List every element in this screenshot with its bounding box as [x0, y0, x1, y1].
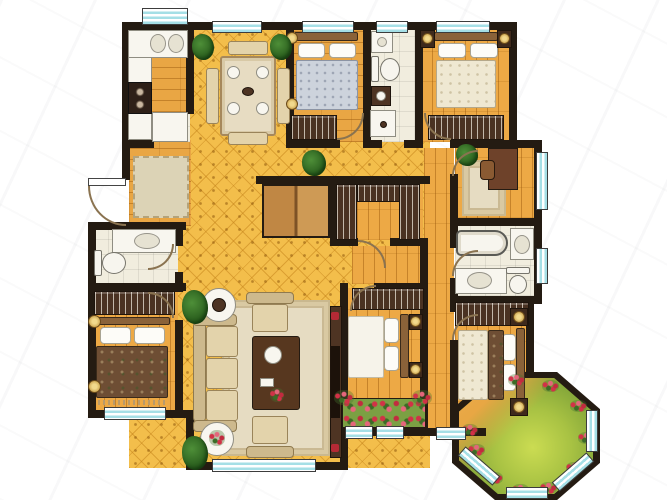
tv-screen [331, 346, 340, 418]
tv-candle-1 [331, 312, 339, 320]
sofa-cushion-2 [206, 358, 238, 389]
b2-headboard [294, 32, 358, 41]
b2-pillow-2 [329, 43, 356, 58]
ms-lamp-2 [513, 401, 525, 413]
entry-door-arc [88, 186, 126, 226]
br-bathtub [456, 230, 508, 256]
kitchen-sink-left [150, 34, 166, 53]
wall-bt-bottom-a [369, 140, 382, 148]
dining-plate-4 [256, 102, 269, 115]
bt-drain-dot [380, 121, 387, 128]
coffee-flowers [270, 388, 284, 402]
side-table-north-vase [212, 298, 226, 312]
b3-headboard [434, 32, 498, 41]
entry-mat [133, 156, 189, 218]
plant-living-south [182, 436, 208, 470]
closet-unit-left [336, 184, 357, 240]
br-toilet-tank [506, 267, 530, 274]
study-window [536, 152, 548, 210]
balcony-flowers-10 [508, 374, 525, 386]
wall-br-top [450, 218, 542, 226]
bbm-pillow-2 [384, 346, 399, 371]
side-table-south-plant [209, 430, 225, 446]
living-window [212, 459, 316, 472]
bbm-lamp-2 [410, 364, 421, 375]
sofa-cushion-1 [206, 326, 238, 357]
plant-dining-left [192, 34, 214, 60]
coffee-tray [264, 346, 282, 364]
ms-pillow-1 [502, 334, 516, 361]
bbl-headboard [94, 317, 170, 325]
balcony-flowers-8 [570, 400, 587, 412]
b3-lamp-2 [499, 33, 510, 44]
bbm-window-2 [376, 426, 404, 439]
b3-pillow-1 [438, 43, 466, 58]
bbl-duvet [96, 346, 168, 398]
wall-bathl-bottom [88, 283, 186, 291]
dining-plate-3 [227, 102, 240, 115]
bbl-window [104, 407, 166, 420]
bt-window [376, 21, 408, 33]
dining-plate-1 [227, 66, 240, 79]
bl-toilet-tank [94, 250, 102, 276]
ms-headboard [516, 328, 525, 402]
balcony-flowers-9 [542, 380, 559, 392]
closet-unit-right [399, 184, 420, 240]
dining-chair-west [206, 68, 219, 124]
bt-toilet-tank [371, 56, 379, 82]
wall-bl-right [175, 320, 183, 418]
balcony-window-east [586, 410, 598, 452]
wall-b2-bottom [290, 140, 340, 148]
sofa-cushion-3 [206, 390, 238, 421]
bbm-pillow-1 [384, 318, 399, 343]
hall-cabinet [262, 184, 330, 238]
ms-lamp-1 [513, 311, 525, 323]
bt-toilet-bowl [380, 58, 400, 81]
dining-plate-2 [256, 66, 269, 79]
armchair-north-back [246, 292, 294, 304]
tv-candle-2 [331, 444, 339, 452]
kitchen-window [142, 8, 188, 25]
dining-window [212, 21, 262, 33]
armchair-north-seat [252, 304, 288, 332]
bbm-lamp-1 [410, 316, 421, 327]
sofa-back [193, 322, 206, 422]
bl-toilet-bowl [102, 252, 126, 274]
b3-pillow-2 [470, 43, 498, 58]
b2-wardrobe [291, 115, 337, 140]
wall-bathl-right-b [175, 272, 183, 292]
wall-kitchen-bottom [122, 140, 154, 148]
floor-plan [0, 0, 667, 500]
kitchen-sink-right [168, 34, 184, 53]
ms-duvet-light [458, 330, 488, 400]
dining-chair-east [277, 68, 290, 124]
wall-ms-left-b [450, 340, 458, 436]
br-basin-1 [514, 235, 530, 254]
plant-hallway [302, 150, 326, 176]
bbl-pillow-2 [134, 327, 165, 344]
bbm-duvet [348, 316, 384, 378]
wall-cabinet-top [256, 176, 430, 184]
ms-duvet-dark [488, 330, 504, 400]
wall-study-left [450, 174, 458, 222]
plant-dining-right [270, 34, 292, 60]
study-chair [480, 160, 495, 180]
armchair-south-seat [252, 416, 288, 444]
bbm-headboard [400, 314, 409, 378]
br-window [536, 248, 548, 284]
armchair-south-back [246, 446, 294, 458]
bt-washer-door [376, 91, 386, 101]
corridor-window [436, 427, 466, 440]
bbm-flowers-left [334, 390, 354, 405]
kitchen-wood-strip [150, 58, 188, 112]
dining-chair-north [228, 41, 268, 55]
b2-duvet [296, 60, 358, 110]
coffee-magazine [260, 378, 274, 387]
bbm-flowers-right [412, 390, 432, 405]
dining-chair-south [228, 132, 268, 145]
bbl-lamp-1 [88, 315, 101, 328]
b2-lamp-2 [286, 98, 298, 110]
bbl-rug-fringe [98, 400, 166, 405]
bt-shower-drain [377, 37, 387, 47]
b3-lamp-1 [422, 33, 433, 44]
wall-bt-bottom-b [404, 140, 417, 148]
bbm-window-1 [345, 426, 373, 439]
kitchen-stove [128, 82, 152, 114]
b2-window [302, 21, 354, 33]
closet-unit-top [357, 184, 401, 202]
plant-living-north [182, 290, 208, 324]
bbl-lamp-2 [88, 380, 101, 393]
bbl-pillow-1 [100, 327, 131, 344]
kitchen-fridge [152, 112, 188, 142]
br-toilet-bowl [509, 275, 527, 294]
b2-pillow-1 [298, 43, 325, 58]
b3-duvet [436, 60, 496, 108]
b3-window [436, 21, 490, 33]
entry-door-leaf [88, 178, 126, 186]
dining-centerpiece [242, 87, 254, 96]
balcony-window-south [506, 487, 548, 499]
wall-bathl-right-a [175, 222, 183, 246]
